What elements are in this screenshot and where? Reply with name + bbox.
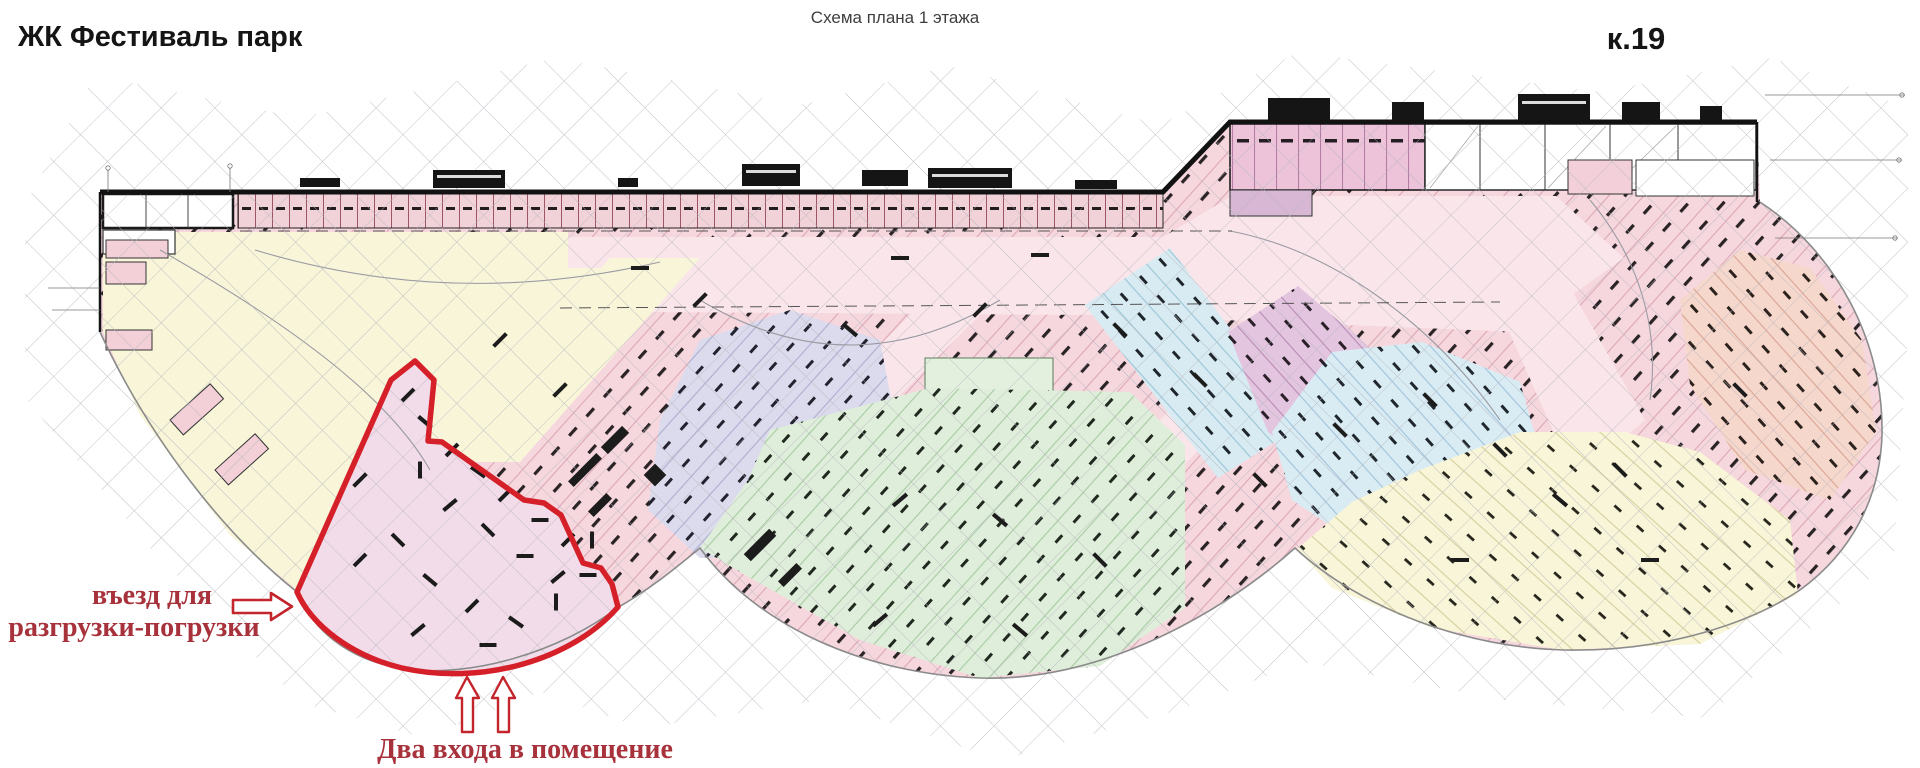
- project-title: ЖК Фестиваль парк: [17, 21, 303, 53]
- building-label: к.19: [1607, 21, 1666, 56]
- floor-plan-canvas: ЖК Фестиваль парк Схема плана 1 этажа к.…: [0, 0, 1920, 768]
- loading-entrance-label-line2: разгрузки-погрузки: [8, 612, 259, 643]
- drawing-title: Схема плана 1 этажа: [811, 8, 980, 27]
- construction-grid: [25, 52, 1908, 760]
- two-entrances-label: Два входа в помещение: [377, 734, 673, 765]
- loading-entrance-label-line1: въезд для: [92, 580, 212, 611]
- screenshot-root: ЖК Фестиваль парк Схема плана 1 этажа к.…: [0, 0, 1920, 768]
